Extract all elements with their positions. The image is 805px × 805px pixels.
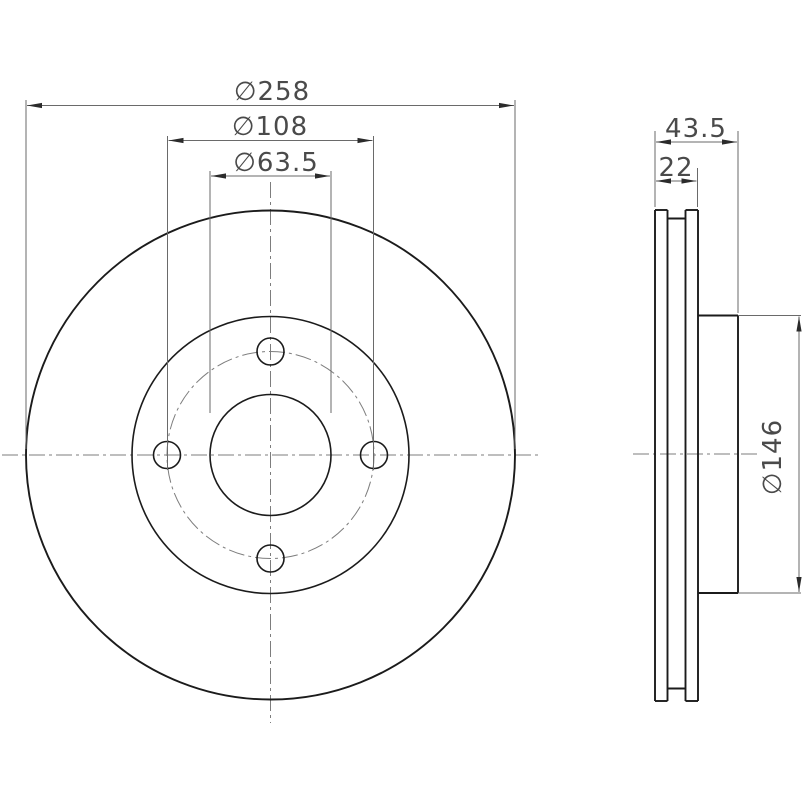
- outer-diameter-label: ∅258: [234, 77, 310, 107]
- arrowhead-right-icon: [358, 138, 373, 143]
- center-bore-label: ∅63.5: [233, 148, 319, 178]
- arrowhead-left-icon: [211, 173, 226, 178]
- overall-width-label: 43.5: [665, 114, 727, 144]
- arrowhead-left-icon: [169, 138, 184, 143]
- technical-drawing-canvas: ∅258 ∅108 ∅63.5: [0, 0, 805, 805]
- hat-diameter-label: ∅146: [758, 419, 788, 495]
- bolt-circle-label: ∅108: [232, 112, 308, 142]
- arrowhead-down-icon: [796, 577, 801, 592]
- arrowhead-right-icon: [499, 103, 514, 108]
- thickness-label: 22: [658, 153, 693, 183]
- front-view: [2, 182, 538, 723]
- dimension-thickness: 22: [656, 153, 698, 207]
- brake-disc-drawing: ∅258 ∅108 ∅63.5: [0, 0, 805, 805]
- arrowhead-up-icon: [796, 317, 801, 332]
- arrowhead-left-icon: [27, 103, 42, 108]
